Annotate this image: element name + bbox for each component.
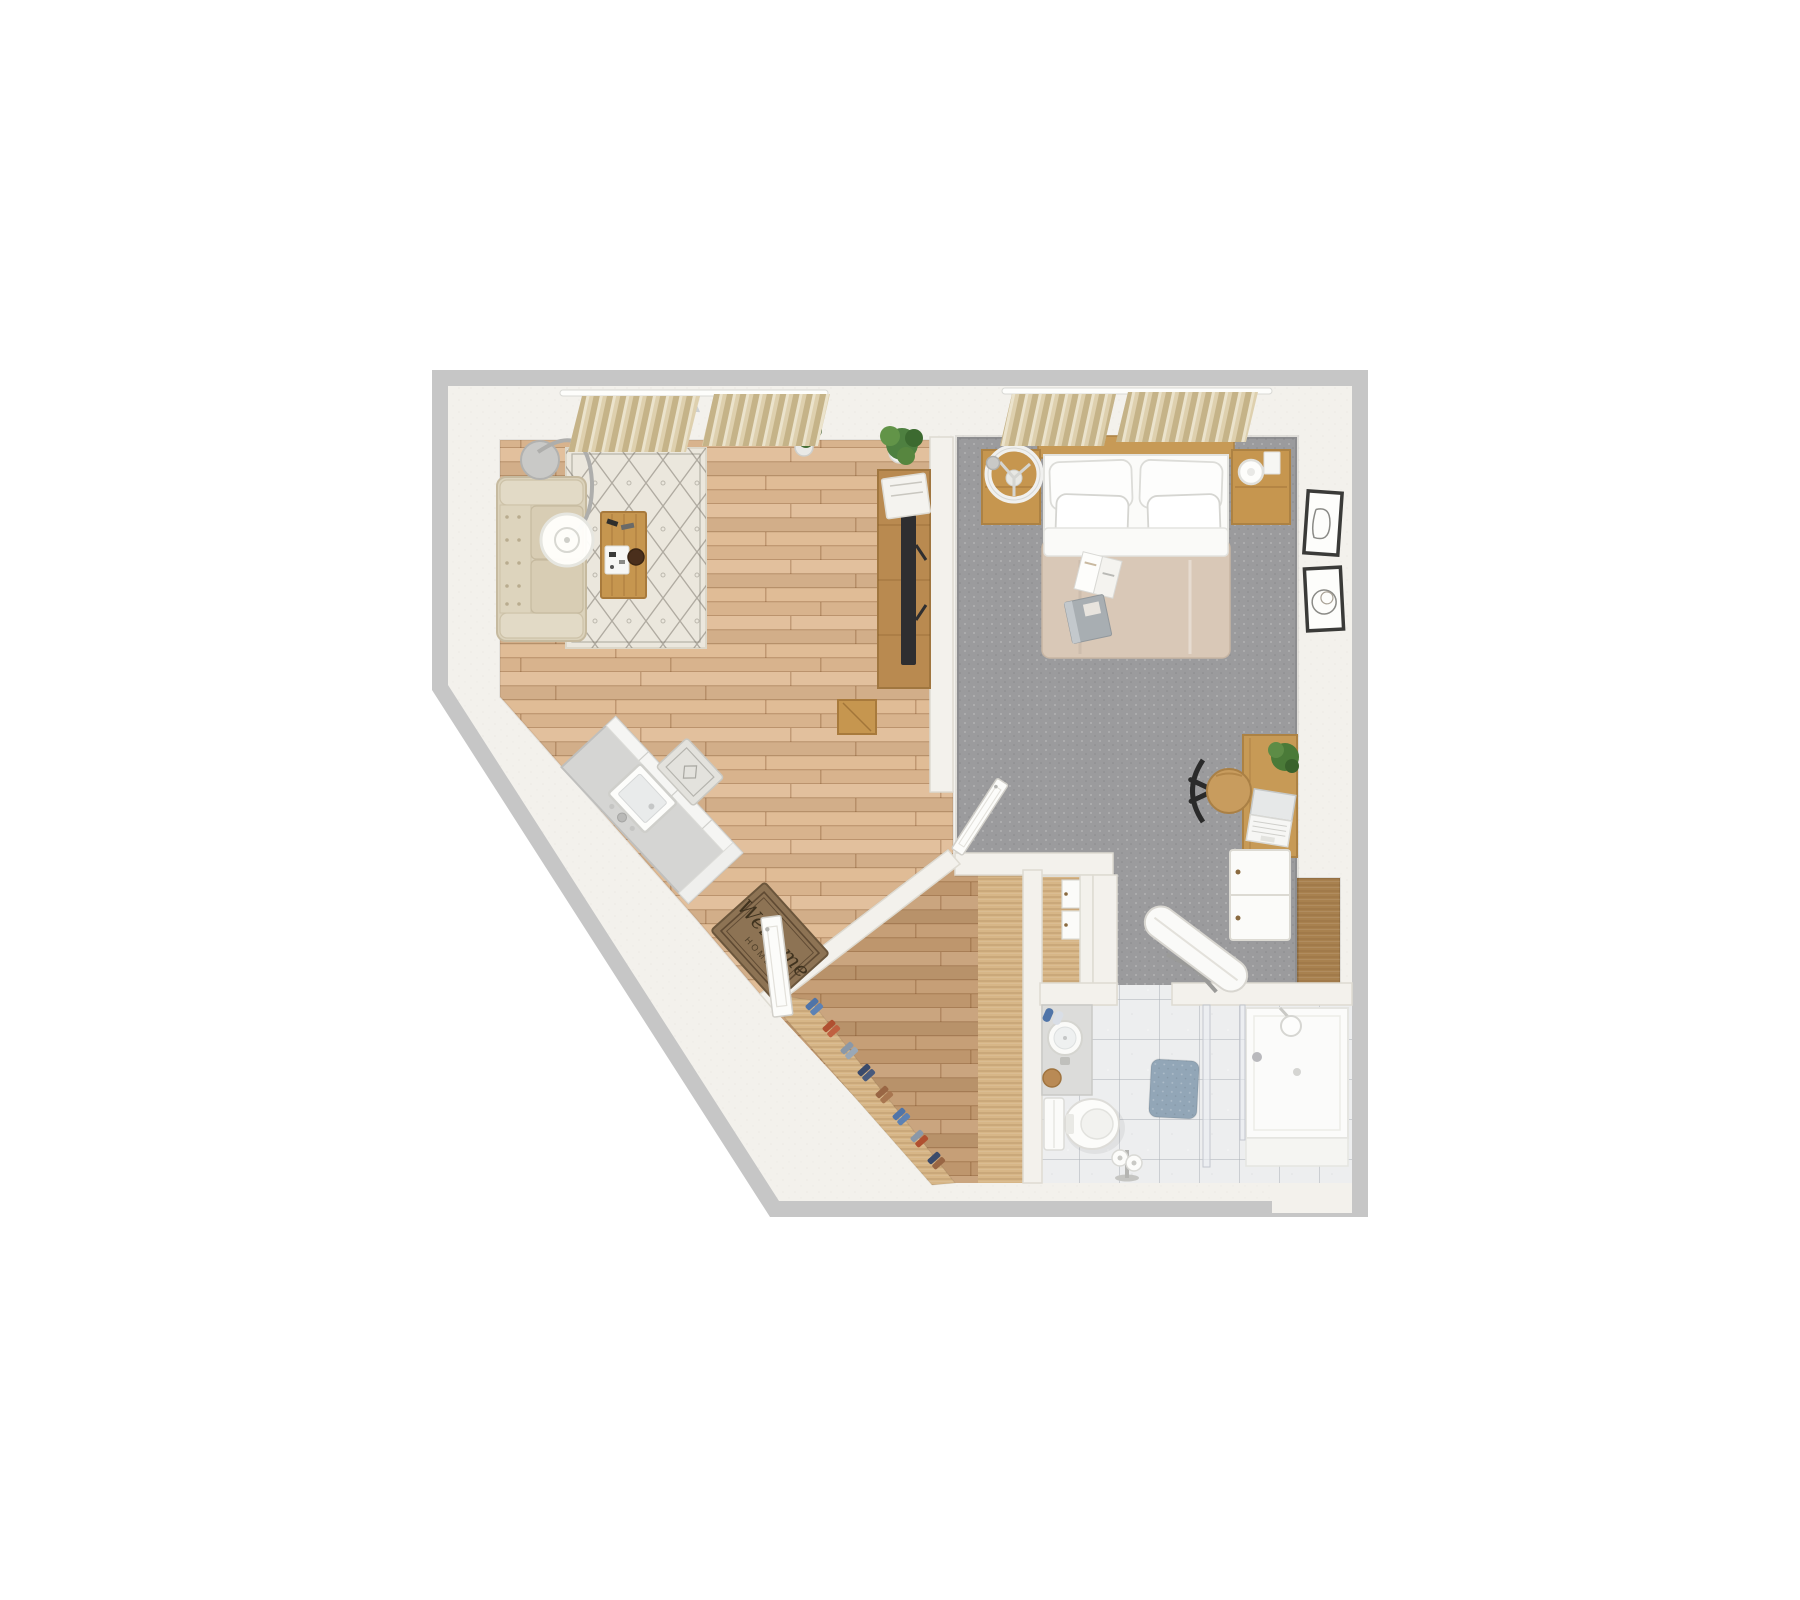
wall-closet-divider	[1023, 870, 1042, 1183]
sofa-armrest-bottom	[500, 613, 583, 638]
sink-faucet	[1060, 1057, 1070, 1065]
console-magazines	[881, 473, 930, 519]
shower-glass-door	[1240, 1005, 1245, 1140]
curtain-living-2-pleats	[702, 394, 830, 446]
sofa-seat-cushion-2	[531, 560, 583, 613]
dresser	[1230, 850, 1290, 940]
curtain-living-1-pleats	[568, 396, 700, 452]
shower-knob	[1252, 1052, 1262, 1062]
chair-seat	[1207, 769, 1251, 813]
shower-head	[1281, 1016, 1301, 1036]
closet-floor-long-grain	[978, 875, 1023, 1183]
shower-glass-left	[1203, 1005, 1210, 1167]
book-on-bed	[1064, 594, 1112, 643]
picture-frame-bottom	[1304, 567, 1343, 631]
shower-drain	[1293, 1068, 1301, 1076]
wall-bathroom-top-left	[1040, 983, 1117, 1005]
curtain-bedroom-2-pleats	[1116, 392, 1258, 442]
wall-living-bedroom	[930, 437, 953, 792]
tv-console	[878, 470, 931, 688]
wall-niche-closet-grain	[1297, 878, 1340, 986]
bottom-wall-niche	[1272, 1185, 1352, 1213]
laptop	[1246, 789, 1296, 847]
duvet-fold	[1044, 528, 1228, 556]
shower-ledge	[1246, 1138, 1348, 1166]
wall-closet-right	[1080, 875, 1093, 987]
wall-bathroom-top-right	[1172, 983, 1352, 1005]
curtain-bedroom-1-pleats	[1000, 394, 1116, 446]
tv-screen	[901, 515, 916, 665]
table-bowl	[628, 549, 644, 565]
sofa-armrest-top	[500, 480, 583, 505]
coffee-table	[601, 512, 646, 598]
duvet	[1042, 540, 1230, 658]
bed	[1042, 455, 1230, 658]
floor-plan-canvas: Welcome HOME	[0, 0, 1800, 1600]
lamp-bulb	[564, 537, 570, 543]
bath-mat-texture	[1149, 1059, 1200, 1119]
picture-frame-top	[1304, 491, 1342, 555]
lamp-base	[521, 441, 559, 479]
table-tray	[605, 546, 629, 574]
alarm-clock	[987, 457, 1000, 470]
sofa-backrest	[500, 505, 531, 613]
vanity-stool	[1043, 1069, 1061, 1087]
